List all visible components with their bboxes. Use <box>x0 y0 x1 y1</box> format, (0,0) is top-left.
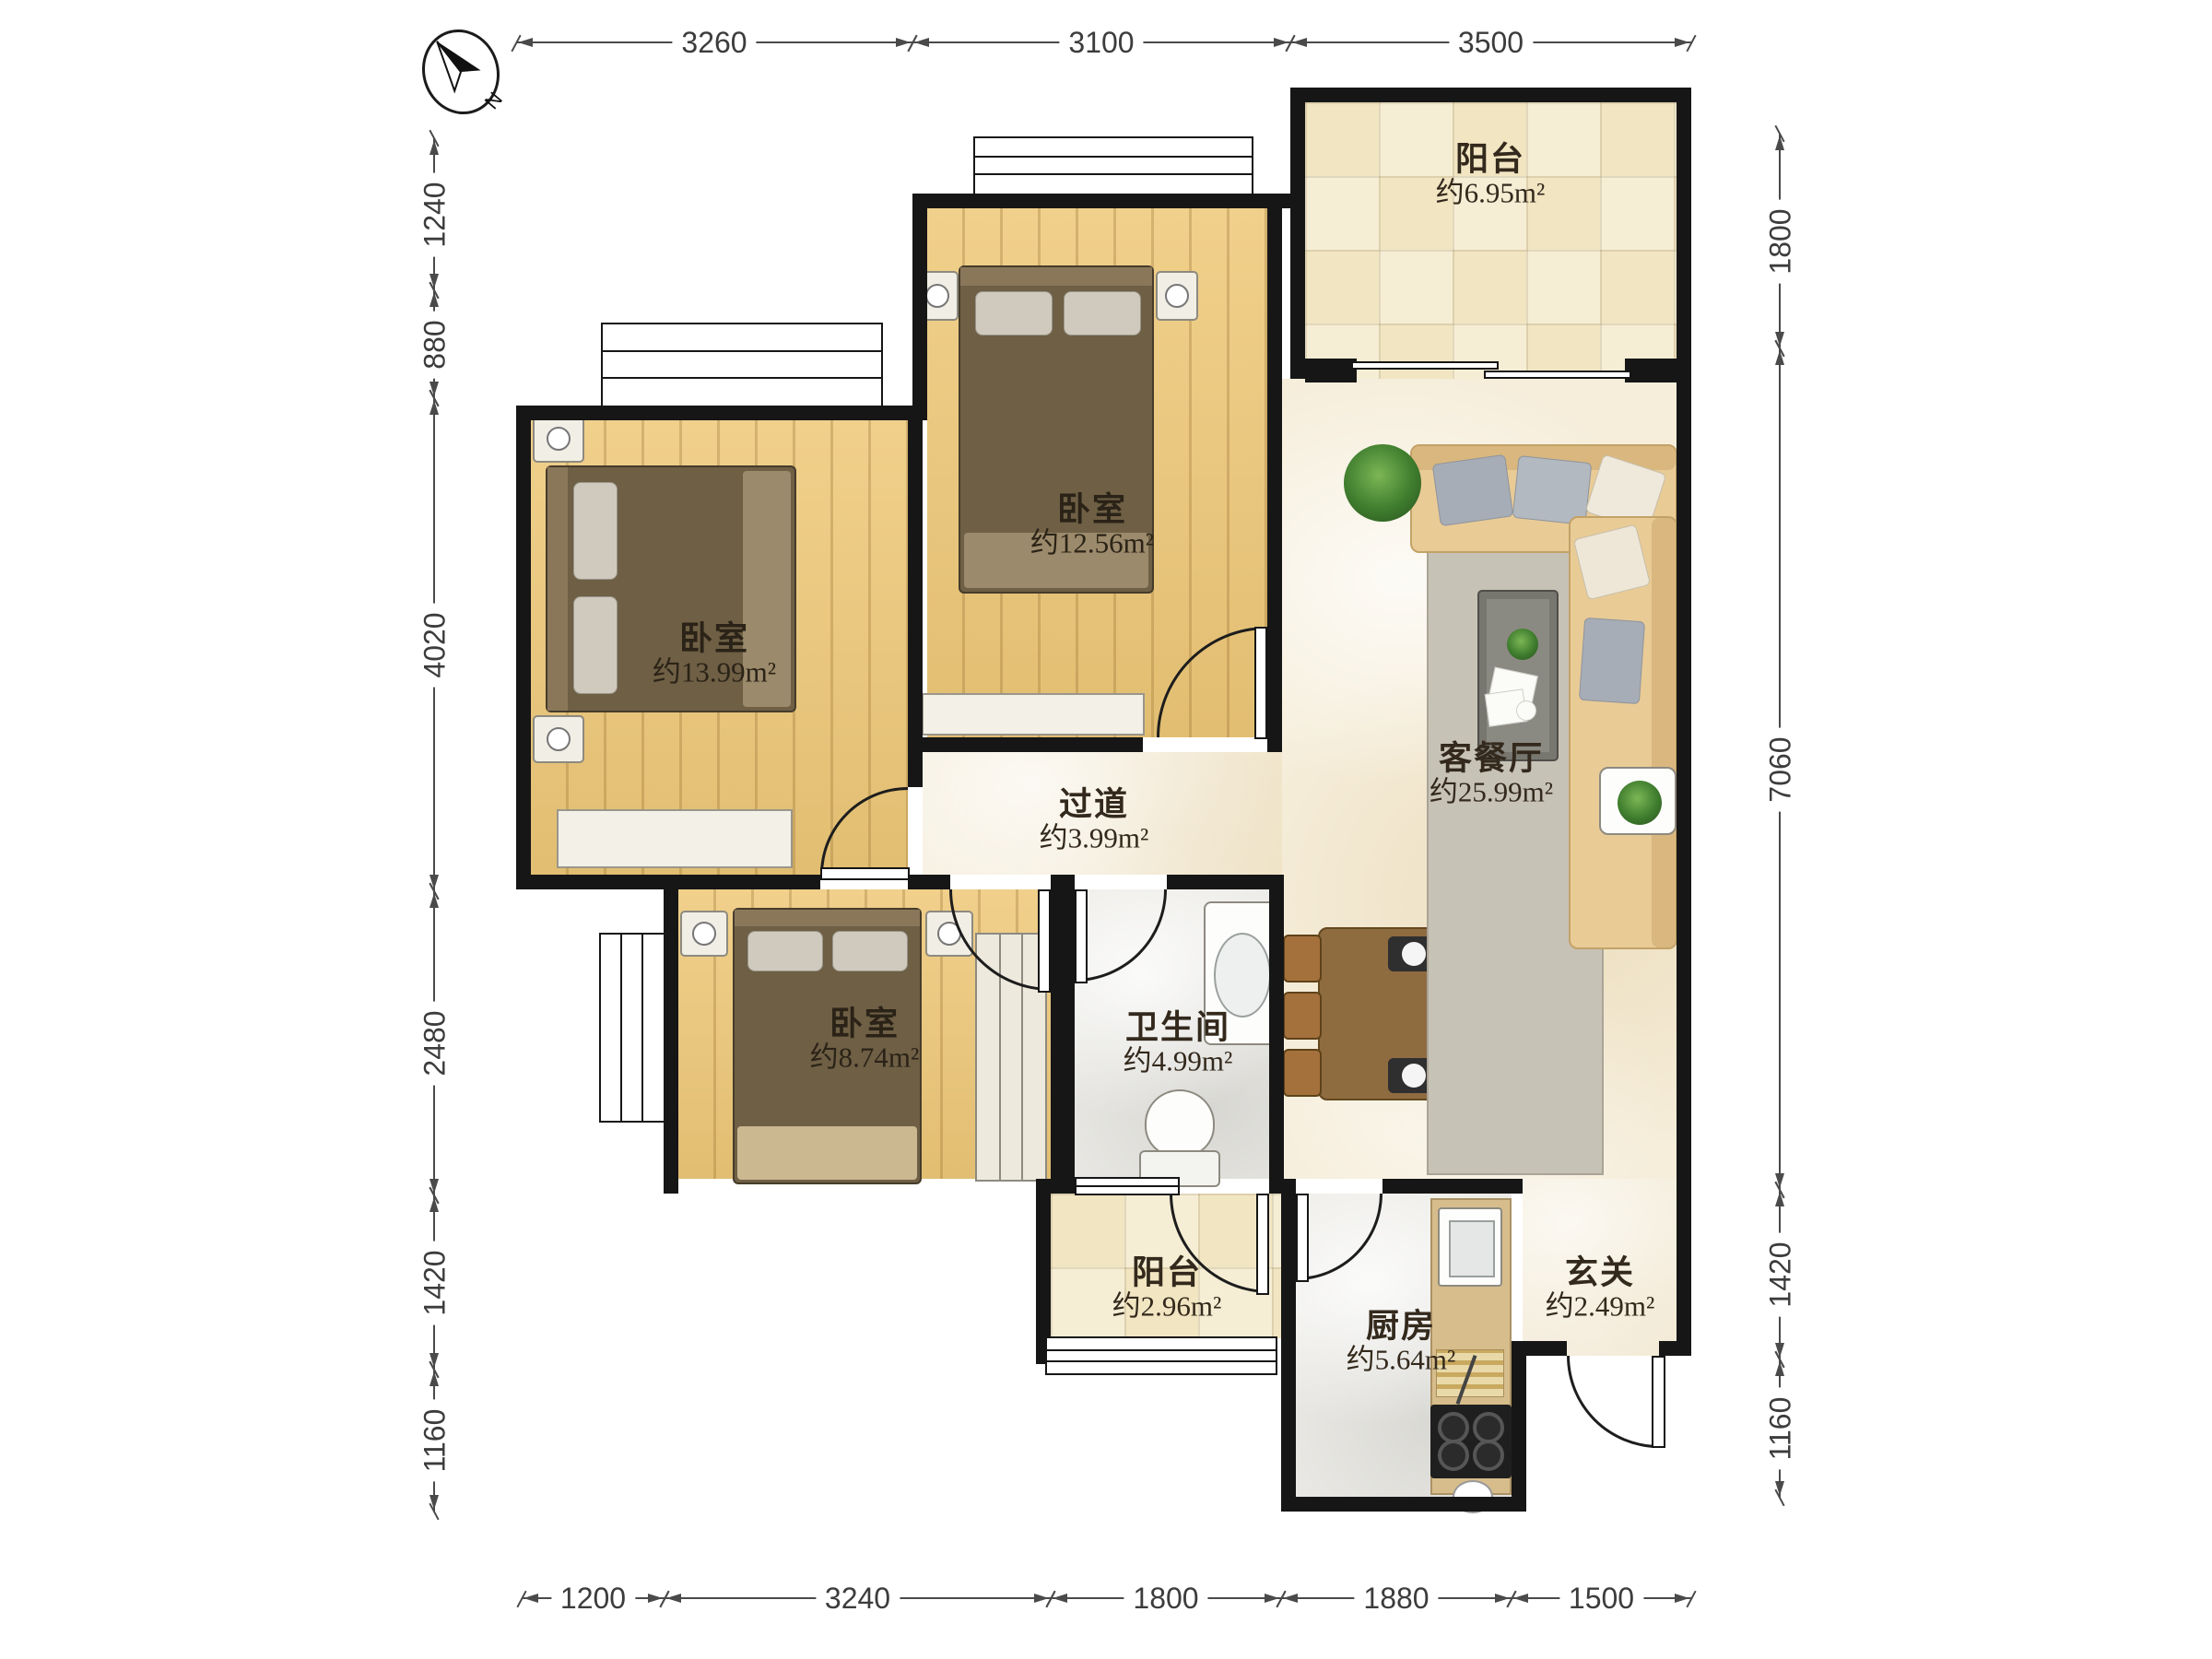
dresser <box>557 809 793 868</box>
floor-plan-canvas: 阳台 约6.95m² 卧室 约12.56m² 卧室 约13.99m² 客餐厅 约… <box>0 0 2212 1659</box>
dimension-right-3: 1420 <box>1779 1190 1781 1359</box>
chair <box>1283 1049 1322 1097</box>
kitchen-sink <box>1438 1207 1502 1287</box>
dimension-bottom-2: 3240 <box>665 1597 1051 1599</box>
dimension-bottom-3: 1800 <box>1051 1597 1281 1599</box>
door-arc-entry <box>1567 1356 1659 1448</box>
wall <box>1290 88 1305 379</box>
dimension-left-1: 1240 <box>433 138 435 290</box>
pillow <box>573 482 618 580</box>
dimension-left-5: 1420 <box>433 1195 435 1370</box>
dimension-top-2: 3100 <box>912 41 1290 43</box>
door-leaf-entry <box>1652 1356 1665 1448</box>
sliding-door-panel <box>1351 361 1499 370</box>
wall <box>912 194 927 420</box>
sofa-pillow <box>1432 454 1514 526</box>
nightstand <box>533 415 584 463</box>
room-label-living: 客餐厅 约25.99m² <box>1430 739 1553 808</box>
room-label-hallway: 过道 约3.99m² <box>1040 785 1149 854</box>
sliding-door-panel <box>1484 371 1631 379</box>
dimension-top-3: 3500 <box>1290 41 1691 43</box>
wall <box>664 875 678 1194</box>
side-table <box>1599 767 1677 835</box>
stove <box>1430 1405 1512 1478</box>
door-leaf-bathroom <box>1075 889 1088 983</box>
wall-post <box>1305 359 1357 382</box>
dimension-left-4: 2480 <box>433 891 435 1195</box>
wall <box>1659 1341 1691 1356</box>
door-leaf-left-bedroom <box>820 867 910 880</box>
chair <box>1283 992 1322 1040</box>
bay-window <box>599 933 665 1123</box>
balcony-window <box>1045 1336 1277 1375</box>
room-label-bedroom-left: 卧室 约13.99m² <box>653 619 776 688</box>
coffee-table <box>1477 590 1559 761</box>
wall <box>1677 88 1691 1356</box>
toilet-bowl <box>1145 1089 1215 1158</box>
knife <box>1456 1355 1477 1405</box>
door-leaf-lower-bedroom <box>1038 889 1051 993</box>
bay-window <box>973 136 1253 195</box>
cup <box>1516 700 1536 721</box>
pillow <box>1064 291 1141 335</box>
door-leaf-mid-bedroom <box>1254 627 1267 739</box>
pillow <box>975 291 1053 335</box>
dimension-left-2: 880 <box>433 290 435 398</box>
plant <box>1618 781 1662 825</box>
pillow <box>573 596 618 694</box>
dimension-bottom-1: 1200 <box>522 1597 665 1599</box>
pillow <box>832 931 908 971</box>
blanket <box>737 1126 917 1180</box>
wall-post <box>1625 359 1677 382</box>
burner <box>1473 1412 1504 1443</box>
headboard <box>547 467 568 711</box>
room-label-bedroom-lower: 卧室 约8.74m² <box>810 1005 920 1074</box>
sofa-back <box>1652 518 1676 947</box>
dimension-left-6: 1160 <box>433 1370 435 1512</box>
room-label-bathroom: 卫生间 约4.99m² <box>1124 1008 1233 1077</box>
dimension-right-1: 1800 <box>1779 134 1781 348</box>
sofa-pillow <box>1579 618 1645 704</box>
room-label-entry: 玄关 约2.49m² <box>1546 1253 1655 1323</box>
wall <box>1512 1341 1567 1356</box>
burner <box>1438 1440 1469 1471</box>
window <box>1075 1177 1180 1195</box>
room-label-balcony-top: 阳台 约6.95m² <box>1436 140 1546 209</box>
cabinet <box>922 693 1145 735</box>
dimension-bottom-5: 1500 <box>1512 1597 1691 1599</box>
room-label-balcony-bottom: 阳台 约2.96m² <box>1112 1253 1222 1323</box>
chair <box>1283 935 1322 982</box>
wall <box>912 737 1143 752</box>
wall <box>1167 875 1284 889</box>
dimension-bottom-4: 1880 <box>1281 1597 1512 1599</box>
sofa-pillow <box>1512 455 1593 525</box>
wall <box>1281 1497 1526 1512</box>
wall <box>912 194 1305 208</box>
wall <box>516 406 531 889</box>
wall <box>516 406 927 420</box>
wall <box>908 875 923 889</box>
sofa-pillow <box>1573 524 1651 601</box>
wall <box>1281 1179 1296 1512</box>
burner <box>1473 1440 1504 1471</box>
door-leaf-kitchen <box>1296 1194 1309 1282</box>
sink-basin <box>1214 933 1271 1018</box>
north-compass: N <box>413 24 509 120</box>
sofa-vertical <box>1569 516 1677 949</box>
wall <box>1382 1179 1523 1194</box>
room-label-bedroom-mid: 卧室 约12.56m² <box>1030 490 1154 559</box>
wall <box>1290 88 1691 102</box>
dimension-right-4: 1160 <box>1779 1359 1781 1498</box>
nightstand <box>533 715 584 763</box>
bay-window <box>601 323 883 407</box>
wall <box>923 875 950 889</box>
nightstand <box>1156 271 1198 321</box>
dimension-left-3: 4020 <box>433 398 435 891</box>
nightstand <box>680 911 728 957</box>
dimension-right-2: 7060 <box>1779 348 1781 1190</box>
pillow <box>747 931 823 971</box>
wall <box>1269 875 1284 1179</box>
wall <box>1512 1341 1526 1512</box>
plant-on-table <box>1507 629 1538 660</box>
wall <box>1036 1179 1075 1194</box>
headboard <box>735 910 920 926</box>
headboard <box>960 267 1152 286</box>
door-leaf-balcony <box>1256 1194 1269 1295</box>
wall <box>1051 875 1075 1194</box>
plant <box>1344 444 1421 522</box>
burner <box>1438 1412 1469 1443</box>
room-label-kitchen: 厨房 约5.64m² <box>1347 1307 1456 1376</box>
wall <box>908 420 923 787</box>
compass-icon: N <box>413 24 509 120</box>
kitchen-sink-basin <box>1449 1220 1495 1277</box>
wall <box>1267 194 1282 752</box>
dimension-top-1: 3260 <box>516 41 912 43</box>
